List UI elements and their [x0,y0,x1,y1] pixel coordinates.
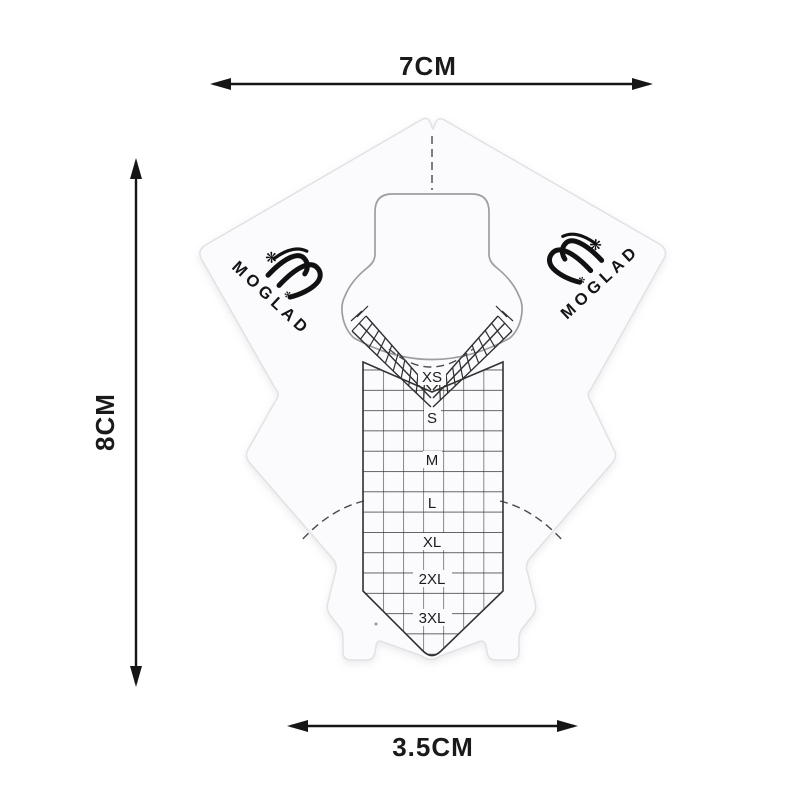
nail-form-dimension-diagram: 7CM 8CM 3.5CM [0,0,800,800]
paper-speck [375,623,378,626]
left-height-label: 8CM [90,393,120,451]
top-width-label: 7CM [399,51,457,81]
size-label-s: S [427,410,437,427]
arrowhead-left-icon [287,720,308,732]
bottom-width-arrow: 3.5CM [287,720,578,762]
left-height-arrow: 8CM [90,158,142,687]
bottom-width-label: 3.5CM [392,732,474,762]
product-photo: 7CM 8CM 3.5CM [0,0,800,800]
size-label-xs: XS [422,369,442,386]
size-label-m: M [426,452,439,469]
arrowhead-left-icon [210,78,231,90]
top-width-arrow: 7CM [210,51,653,90]
size-label-l: L [428,495,436,512]
size-label-2xl: 2XL [419,571,446,588]
arrowhead-down-icon [130,666,142,687]
arrowhead-up-icon [130,158,142,179]
size-label-3xl: 3XL [419,610,446,627]
arrowhead-right-icon [557,720,578,732]
size-label-xl: XL [423,534,441,551]
arrowhead-right-icon [632,78,653,90]
